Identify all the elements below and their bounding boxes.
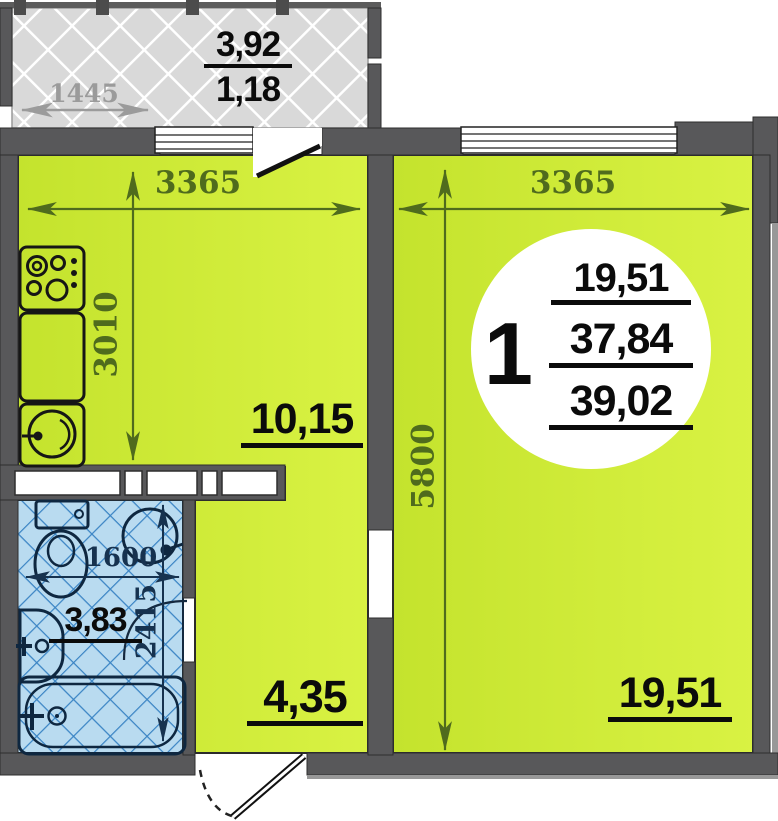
- rooms-count-label: 1: [478, 310, 538, 398]
- balcony-left-wall: [0, 8, 12, 106]
- living-room-area-label: 19,51: [608, 672, 732, 722]
- kitchen-width-dimension: 3365: [128, 168, 268, 199]
- living-room-depth-dimension: 5800: [409, 417, 440, 517]
- badge-living-area-label: 19,51: [551, 258, 691, 305]
- kitchen-window: [155, 127, 253, 153]
- right-exterior-wall: [753, 155, 770, 772]
- bottom-wall-left: [0, 753, 195, 775]
- balcony-width-dimension: 1445: [29, 81, 139, 106]
- entrance-door: [200, 756, 304, 817]
- bathroom-width-dimension: 1600: [66, 545, 176, 571]
- kitchen-depth-dimension: 3010: [92, 285, 123, 385]
- left-exterior-wall: [0, 128, 18, 775]
- bathroom-depth-dimension: 2415: [134, 572, 161, 672]
- hall-livingroom-wall-upper: [368, 155, 393, 530]
- balcony-area-full-label: 3,92: [204, 27, 292, 68]
- entrance-door-leaf: [233, 756, 304, 817]
- bathroom-area-label: 3,83: [49, 603, 142, 643]
- right-outer-edge: [772, 223, 778, 775]
- living-room-window: [461, 127, 677, 153]
- badge-total-area-label: 39,02: [549, 380, 693, 430]
- badge-apartment-area-label: 37,84: [549, 318, 693, 368]
- balcony-area-reduced-label: 1,18: [206, 72, 290, 107]
- hall-livingroom-wall-lower: [368, 618, 393, 755]
- apartment-floor-plan: 1 19,51 37,84 39,02 10,15 4,35 19,51 3,8…: [0, 0, 778, 821]
- bottom-wall-right: [307, 753, 778, 775]
- top-wall-middle: [322, 128, 463, 155]
- entrance-door-swing: [200, 770, 236, 817]
- living-room-width-dimension: 3365: [503, 168, 643, 199]
- kitchen-area-label: 10,15: [241, 398, 363, 448]
- hallway-area-label: 4,35: [247, 674, 363, 726]
- balcony-right-wall-lower: [368, 64, 381, 128]
- balcony-right-wall-upper: [368, 8, 381, 58]
- kitchen-top-wall: [0, 128, 160, 155]
- bathroom-right-wall-upper: [183, 500, 195, 598]
- bottom-outer-edge: [307, 775, 778, 779]
